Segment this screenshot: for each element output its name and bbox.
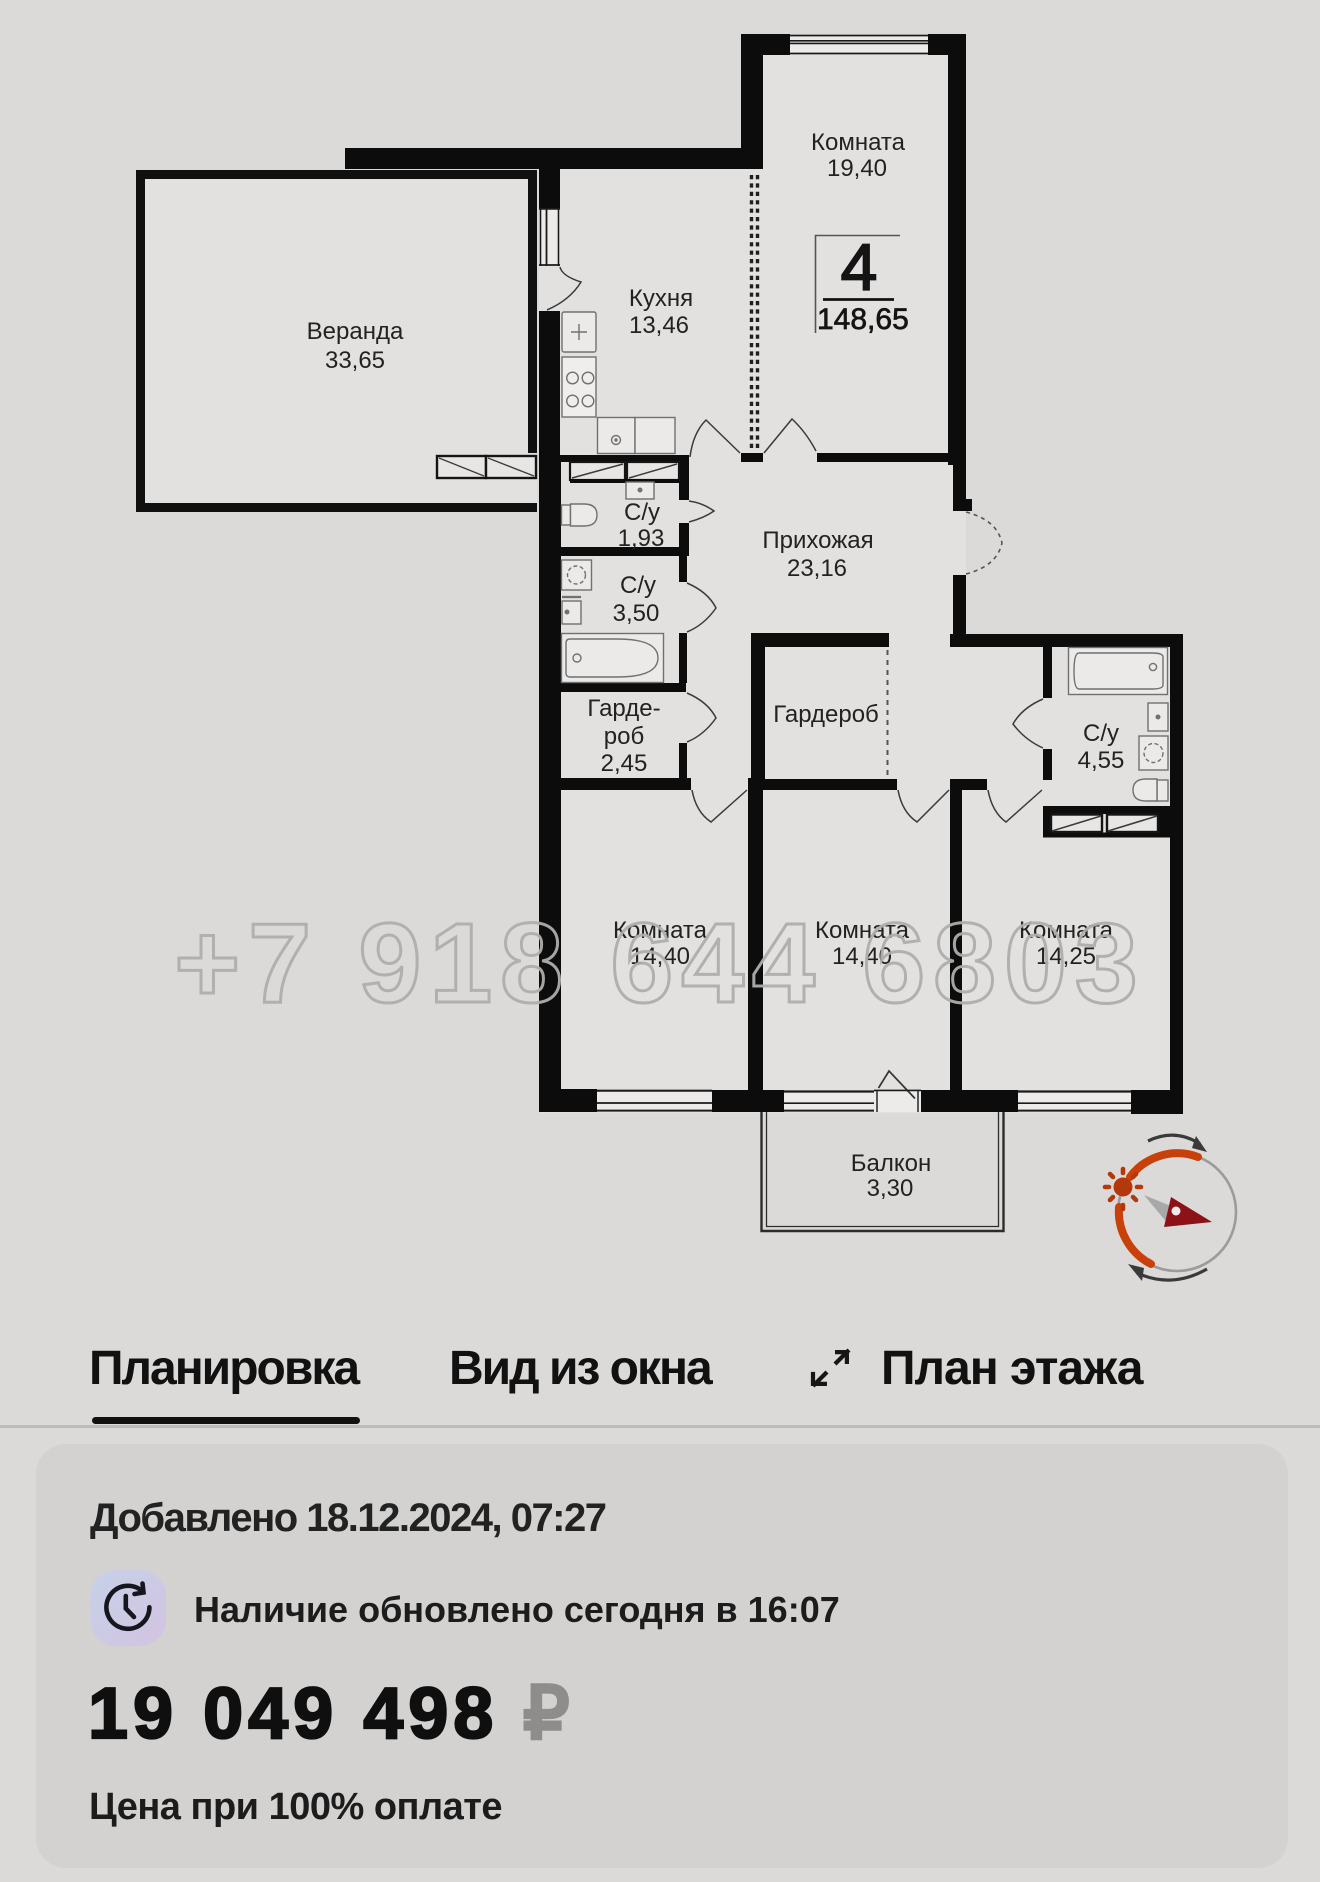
svg-text:148,65: 148,65 <box>817 303 909 336</box>
svg-text:3,50: 3,50 <box>613 600 660 627</box>
svg-text:19,40: 19,40 <box>827 155 887 182</box>
svg-text:4,55: 4,55 <box>1078 747 1125 774</box>
svg-text:1,93: 1,93 <box>618 525 665 552</box>
svg-text:+7 918 644 6803: +7 918 644 6803 <box>174 900 1145 1026</box>
svg-text:Балкон: Балкон <box>851 1150 931 1177</box>
svg-text:3,30: 3,30 <box>867 1175 914 1202</box>
svg-text:33,65: 33,65 <box>325 347 385 374</box>
svg-text:Веранда: Веранда <box>307 318 404 345</box>
svg-text:С/у: С/у <box>624 499 660 526</box>
svg-text:Кухня: Кухня <box>629 285 693 312</box>
svg-text:С/у: С/у <box>620 572 656 599</box>
svg-text:роб: роб <box>604 723 644 750</box>
svg-text:С/у: С/у <box>1083 720 1119 747</box>
svg-text:Комната: Комната <box>811 129 906 156</box>
svg-text:4: 4 <box>841 230 878 304</box>
svg-text:Прихожая: Прихожая <box>762 527 873 554</box>
svg-text:Гарде-: Гарде- <box>587 695 660 722</box>
svg-text:2,45: 2,45 <box>601 750 648 777</box>
svg-text:13,46: 13,46 <box>629 312 689 339</box>
svg-text:23,16: 23,16 <box>787 555 847 582</box>
svg-text:Гардероб: Гардероб <box>773 701 879 728</box>
